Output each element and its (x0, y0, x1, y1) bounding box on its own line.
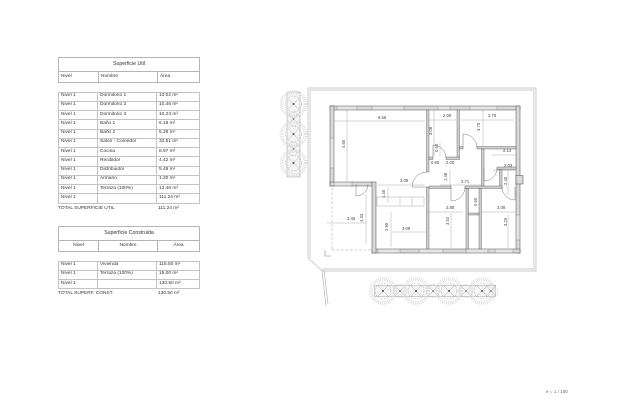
table-row: Nivel 1Dormitorio 113.02 m² (59, 92, 200, 101)
dimension-label: 1.48 (443, 172, 448, 181)
superficie-construida-table: Superficie Construida Nivel Nombre Área … (58, 226, 200, 298)
table-row: Nivel 1Baño 16.19 m² (59, 120, 200, 129)
table-row: Nivel 1Cocina8.97 m² (59, 148, 200, 157)
dimension-label: 2.00 (443, 113, 452, 118)
table-row: Nivel 1Terraza (100%)15.00 m² (59, 270, 200, 279)
table-body: Nivel 1Vivienda115.50 m²Nivel 1Terraza (… (58, 261, 200, 290)
table-row: Nivel 1Armario1.20 m² (59, 175, 200, 184)
dimension-label: 0.60 (434, 143, 439, 152)
dimension-lines (327, 110, 515, 248)
table-cell: Terraza (100%) (98, 185, 157, 194)
table-total-row: TOTAL SUPERF. CONST. 130.50 m² (58, 289, 200, 298)
column-header-area: Área (157, 72, 199, 83)
column-header-nombre: Nombre (98, 72, 157, 83)
dimension-label: 2.88 (446, 205, 455, 210)
total-label: TOTAL SUPERF. CONST. (58, 289, 156, 298)
column-header-area: Área (157, 241, 199, 252)
table-cell: Armario (98, 175, 157, 184)
table-cell: 32.51 m² (157, 138, 200, 147)
total-value: 130.50 m² (156, 289, 200, 298)
dimension-label: 3.08 (428, 126, 433, 135)
dimension-label: 3.08 (497, 205, 506, 210)
hedge-left (282, 92, 306, 177)
dimension-label: 1.45 (381, 189, 386, 198)
table-cell: 10.23 m² (157, 111, 200, 120)
dimension-label: 3.70 (476, 122, 481, 131)
table-cell: Nivel 1 (59, 138, 98, 147)
table-gap (58, 252, 200, 261)
column-header-nivel: Nivel (59, 72, 98, 83)
dimension-label: 4.33 (359, 213, 364, 222)
table-cell: 10.46 m² (157, 101, 200, 110)
table-header-row: Nivel Nombre Área (58, 241, 200, 253)
dimension-label: 0.50 (473, 197, 478, 206)
table-cell: Dormitorio 1 (98, 92, 157, 101)
table-row: Nivel 1Vivienda115.50 m² (59, 261, 200, 270)
dimension-label: 0.60 (431, 160, 440, 165)
table-title: Superficie Util (58, 57, 200, 72)
table-cell: 111.24 m² (157, 194, 200, 203)
dimension-label: 2.03 (504, 163, 513, 168)
column-header-nombre: Nombre (98, 241, 157, 252)
table-cell: Nivel 1 (59, 157, 98, 166)
table-cell: Nivel 1 (59, 111, 98, 120)
table-cell: 8.97 m² (157, 148, 200, 157)
table-row: Nivel 1Dormitorio 310.23 m² (59, 111, 200, 120)
table-gap (58, 83, 200, 92)
table-cell: 6.19 m² (157, 120, 200, 129)
table-cell: Salon - Comedor (98, 138, 157, 147)
table-row: Nivel 1130.50 m² (59, 280, 200, 289)
table-header-row: Nivel Nombre Área (58, 72, 200, 84)
dimension-label: 3.71 (461, 179, 470, 184)
dimension-label: 3.09 (402, 226, 411, 231)
total-value: 111.24 m² (156, 204, 200, 213)
table-cell: 130.50 m² (157, 280, 200, 289)
table-cell: Cocina (98, 148, 157, 157)
table-cell: 15.00 m² (157, 270, 200, 279)
table-cell: Nivel 1 (59, 261, 98, 270)
table-cell: 5.49 m² (157, 166, 200, 175)
table-cell: Nivel 1 (59, 185, 98, 194)
table-cell: Nivel 1 (59, 120, 98, 129)
table-cell: Recibidor (98, 157, 157, 166)
table-cell: Nivel 1 (59, 175, 98, 184)
table-cell: Baño 1 (98, 120, 157, 129)
table-total-row: TOTAL SUPERFICIE UTIL 111.24 m² (58, 204, 200, 213)
table-row: Nivel 1Recibidor4.42 m² (59, 157, 200, 166)
superficie-util-table: Superficie Util Nivel Nombre Área Nivel … (58, 57, 200, 213)
table-cell: 13.48 m² (157, 185, 200, 194)
windows (330, 106, 519, 252)
table-cell: Nivel 1 (59, 129, 98, 138)
table-cell: Dormitorio 2 (98, 101, 157, 110)
dimension-label: 3.52 (445, 216, 450, 225)
table-cell: Nivel 1 (59, 194, 98, 203)
table-row: Nivel 1111.24 m² (59, 194, 200, 203)
table-cell: 115.50 m² (157, 261, 200, 270)
table-row: Nivel 1Baño 25.28 m² (59, 129, 200, 138)
table-cell (98, 194, 157, 203)
table-cell: Terraza (100%) (98, 270, 157, 279)
table-cell: 13.02 m² (157, 92, 200, 101)
column-header-nivel: Nivel (59, 241, 98, 252)
dimension-label: 8.56 (378, 115, 387, 120)
dimension-label: 3.26 (503, 217, 508, 226)
table-body: Nivel 1Dormitorio 113.02 m²Nivel 1Dormit… (58, 92, 200, 204)
table-row: Nivel 1Salon - Comedor32.51 m² (59, 138, 200, 147)
table-cell (98, 280, 157, 289)
table-cell: Baño 2 (98, 129, 157, 138)
table-cell: Distribuidor (98, 166, 157, 175)
dimension-label: 4.66 (341, 139, 346, 148)
dimension-label: 2.00 (446, 160, 455, 165)
table-row: Nivel 1Dormitorio 210.46 m² (59, 101, 200, 110)
dimension-label: 3.76 (488, 113, 497, 118)
table-cell: 5.28 m² (157, 129, 200, 138)
scale-label: e = 1 / 100 (546, 389, 568, 394)
dimension-label: 3.46 (347, 216, 356, 221)
dimension-label: 3.09 (400, 178, 409, 183)
table-row: Nivel 1Terraza (100%)13.48 m² (59, 185, 200, 194)
dimension-label: 2.13 (503, 148, 512, 153)
table-cell: Dormitorio 3 (98, 111, 157, 120)
table-cell: Nivel 1 (59, 101, 98, 110)
table-cell: Nivel 1 (59, 148, 98, 157)
dimension-label: 2.90 (384, 222, 389, 231)
table-title: Superficie Construida (58, 226, 200, 241)
table-cell: Nivel 1 (59, 92, 98, 101)
boundary-corner-mark (325, 250, 331, 256)
floor-plan-page: 8.562.003.764.663.083.702.132.030.600.60… (0, 0, 630, 401)
table-row: Nivel 1Distribuidor5.49 m² (59, 166, 200, 175)
table-cell: Nivel 1 (59, 270, 98, 279)
table-cell: 4.42 m² (157, 157, 200, 166)
table-cell: Nivel 1 (59, 166, 98, 175)
table-cell: 1.20 m² (157, 175, 200, 184)
table-cell: Nivel 1 (59, 280, 98, 289)
dimension-label: 2.40 (503, 176, 508, 185)
hedge-bottom (371, 279, 498, 303)
total-label: TOTAL SUPERFICIE UTIL (58, 204, 156, 213)
table-cell: Vivienda (98, 261, 157, 270)
